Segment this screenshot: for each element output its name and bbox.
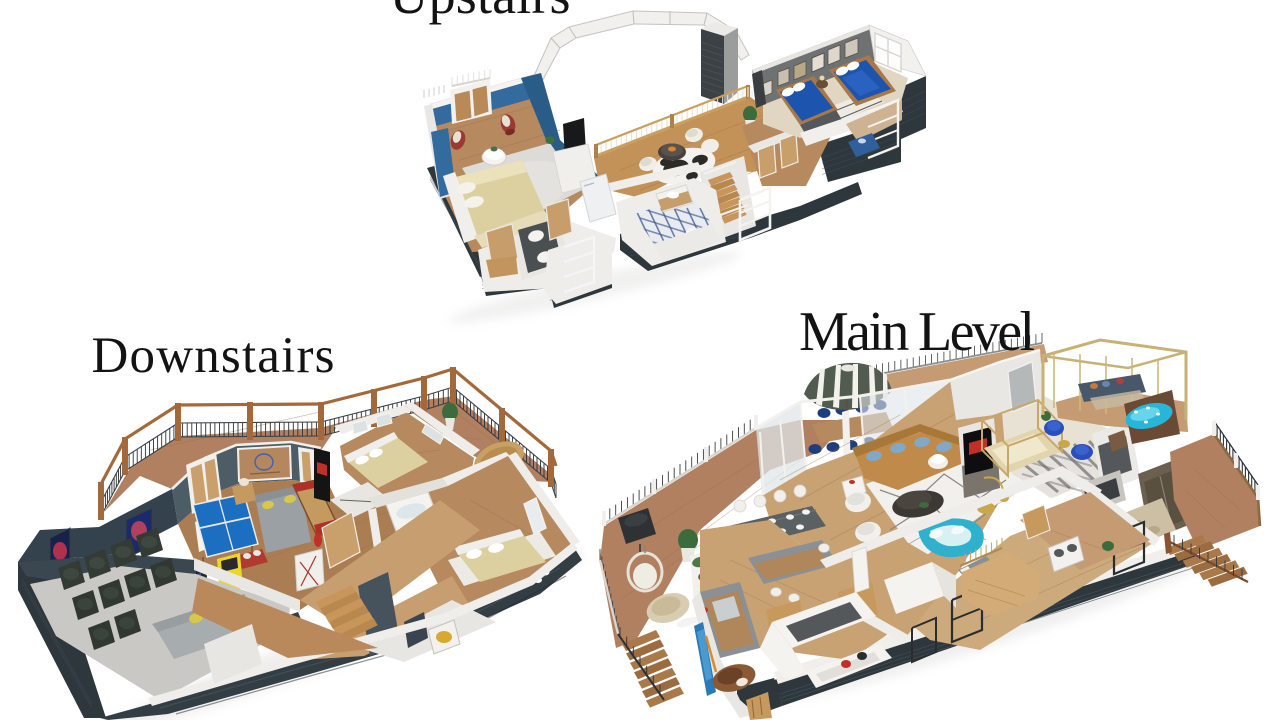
svg-text:Downstairs: Downstairs (92, 328, 335, 384)
svg-text:Upstairs: Upstairs (390, 0, 571, 25)
svg-text:Main Level: Main Level (799, 301, 1035, 363)
